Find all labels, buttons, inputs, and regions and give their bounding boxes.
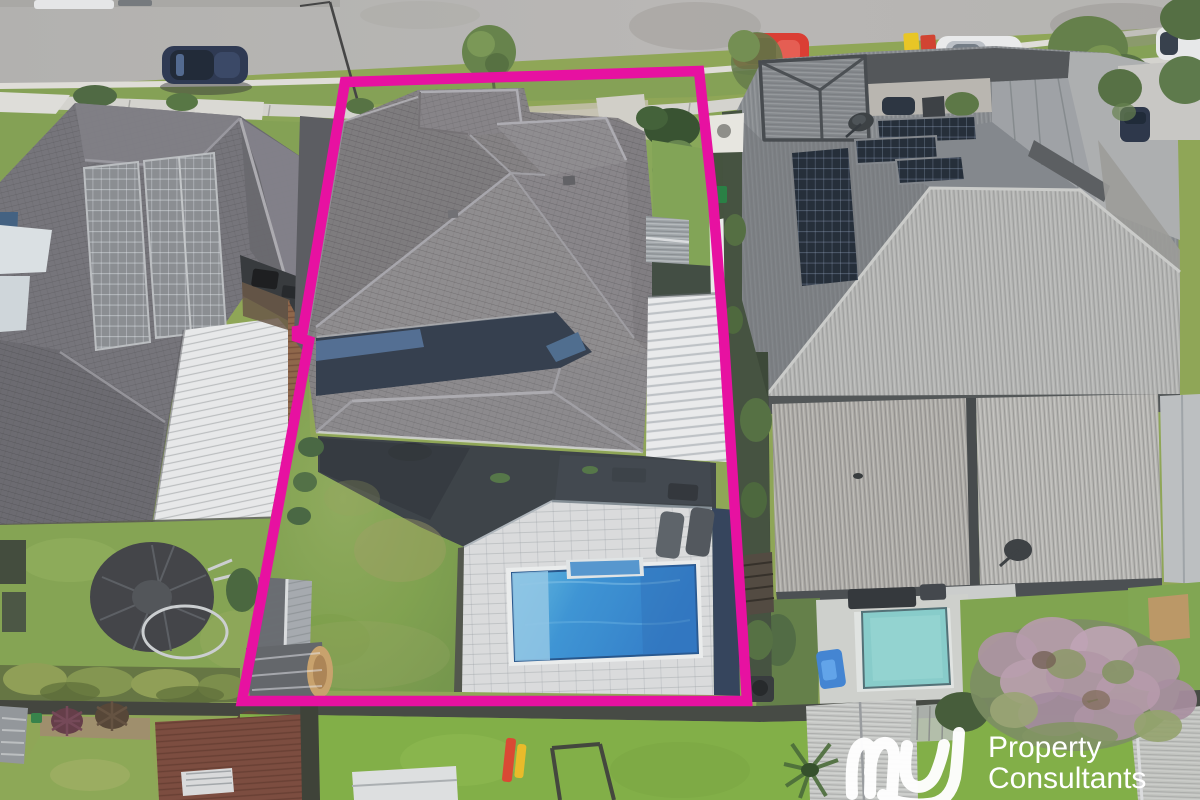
svg-text:Consultants: Consultants <box>988 762 1146 795</box>
svg-text:Property: Property <box>988 731 1101 764</box>
